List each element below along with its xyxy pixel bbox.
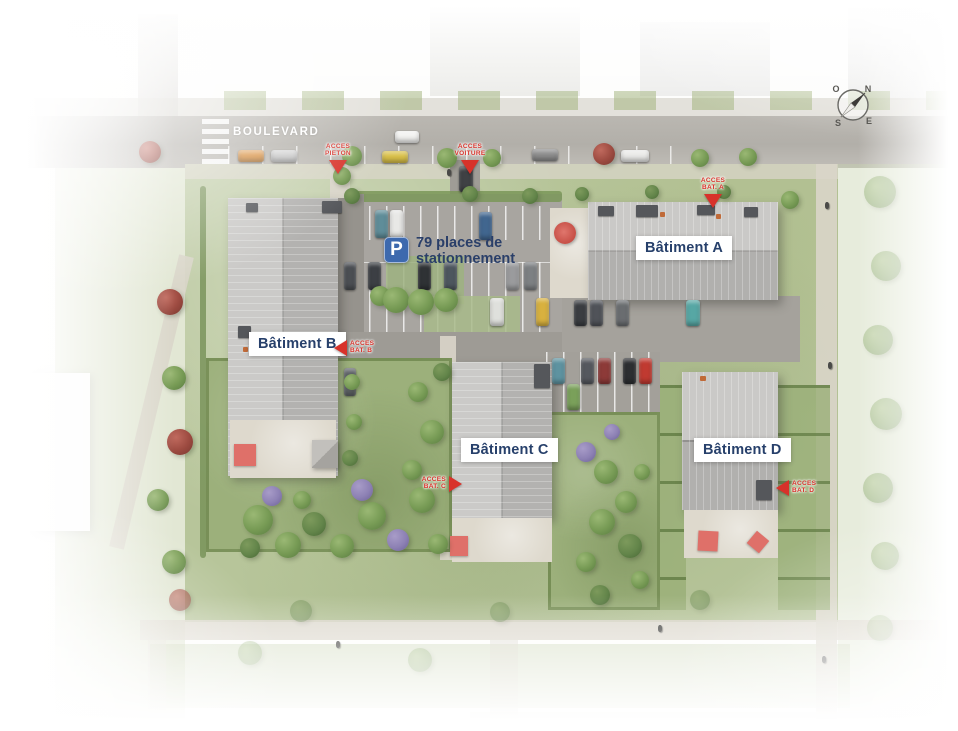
bush xyxy=(243,505,273,535)
bush xyxy=(781,191,799,209)
building-label-d[interactable]: Bâtiment D xyxy=(694,438,791,462)
bush xyxy=(358,502,386,530)
ghost-building-west xyxy=(0,373,90,531)
tree xyxy=(522,188,538,204)
bush xyxy=(290,600,312,622)
access-line: PIETON xyxy=(316,150,360,157)
bush xyxy=(293,491,311,509)
pedestrian xyxy=(828,362,832,369)
bush xyxy=(490,602,510,622)
context-block xyxy=(430,0,580,96)
awning xyxy=(697,530,718,551)
tree xyxy=(169,589,191,611)
site-plan: BOULEVARD xyxy=(0,0,958,731)
car xyxy=(623,358,636,384)
access-bat-b-arrow-icon xyxy=(334,340,347,356)
bush xyxy=(594,460,618,484)
car xyxy=(344,262,356,290)
tree xyxy=(383,287,409,313)
rooftop-furniture xyxy=(243,347,248,352)
parking-count-label: 79 places de stationnement xyxy=(416,236,515,268)
path-south-second xyxy=(470,712,958,731)
bush xyxy=(346,414,362,430)
access-pieton-label: ACCES PIETON xyxy=(316,143,360,158)
rooftop-furniture xyxy=(660,212,665,217)
parking-count-line2: stationnement xyxy=(416,252,515,268)
rooftop-furniture xyxy=(700,376,706,381)
car xyxy=(574,300,587,326)
compass-rose-icon: N E S O xyxy=(824,76,882,134)
access-bat-a-arrow-icon xyxy=(704,194,722,208)
sidewalk-site-top xyxy=(185,164,838,179)
tree xyxy=(691,149,709,167)
garden-plots-east-d xyxy=(778,385,830,610)
car xyxy=(375,210,388,238)
bush xyxy=(615,491,637,513)
car xyxy=(536,298,549,326)
car xyxy=(532,149,558,161)
bush xyxy=(433,363,451,381)
rooftop-unit xyxy=(598,206,614,216)
bush xyxy=(428,534,448,554)
bush xyxy=(645,185,659,199)
tree xyxy=(867,615,893,641)
tree xyxy=(739,148,757,166)
awning xyxy=(450,536,468,556)
tree xyxy=(462,186,478,202)
car xyxy=(616,300,629,326)
compass-north-label: N xyxy=(865,84,872,94)
pedestrian xyxy=(447,169,451,176)
car xyxy=(598,358,611,384)
tree xyxy=(162,366,186,390)
tree xyxy=(864,176,896,208)
car xyxy=(390,210,403,238)
bush xyxy=(275,532,301,558)
bush xyxy=(351,479,373,501)
car xyxy=(621,150,649,162)
access-bat-b-label: ACCES BAT. B xyxy=(350,340,380,355)
bush xyxy=(240,538,260,558)
bush xyxy=(589,509,615,535)
bush xyxy=(634,464,650,480)
tree xyxy=(147,489,169,511)
pedestrian xyxy=(822,656,826,663)
car xyxy=(581,358,594,384)
pedestrian xyxy=(336,641,340,648)
building-label-a[interactable]: Bâtiment A xyxy=(636,236,732,260)
compass-east-label: E xyxy=(866,116,872,126)
car xyxy=(382,151,408,163)
crosswalk xyxy=(202,119,229,165)
tree xyxy=(434,288,458,312)
tree xyxy=(870,398,902,430)
tree xyxy=(167,429,193,455)
rooftop-unit xyxy=(744,207,758,217)
terrace-building-a-west xyxy=(550,208,592,298)
tree xyxy=(157,289,183,315)
bush xyxy=(604,424,620,440)
bush xyxy=(575,187,589,201)
car xyxy=(490,298,504,326)
access-bat-d-arrow-icon xyxy=(776,480,789,496)
tree xyxy=(871,251,901,281)
pedestrian xyxy=(658,625,662,632)
car xyxy=(238,150,264,162)
bush xyxy=(302,512,326,536)
building-label-b[interactable]: Bâtiment B xyxy=(249,332,346,356)
car xyxy=(524,262,537,290)
car xyxy=(567,384,580,410)
rooftop-unit xyxy=(756,480,772,500)
path-south xyxy=(140,620,958,640)
parking-icon: P xyxy=(384,237,409,263)
awning xyxy=(234,444,256,466)
tree xyxy=(238,641,262,665)
car xyxy=(271,150,297,162)
tree xyxy=(408,289,434,315)
parking-count-line1: 79 places de xyxy=(416,236,515,252)
tree xyxy=(863,473,893,503)
access-bat-c-arrow-icon xyxy=(449,476,462,492)
access-bat-d-label: ACCES BAT. D xyxy=(792,480,822,495)
rooftop-furniture xyxy=(716,214,721,219)
building-label-c[interactable]: Bâtiment C xyxy=(461,438,558,462)
tree xyxy=(408,648,432,672)
access-line: BAT. D xyxy=(792,487,822,494)
rooftop-unit xyxy=(636,205,658,217)
car xyxy=(686,300,700,326)
bush xyxy=(342,450,358,466)
bush xyxy=(690,590,710,610)
access-bat-a-label: ACCES BAT. A xyxy=(691,177,735,192)
umbrella xyxy=(554,222,576,244)
context-block xyxy=(640,22,770,96)
tree xyxy=(139,141,161,163)
garden-shed xyxy=(312,440,338,468)
bush xyxy=(262,486,282,506)
bush xyxy=(330,534,354,558)
access-bat-c-label: ACCES BAT. C xyxy=(416,476,446,491)
bush xyxy=(618,534,642,558)
pedestrian xyxy=(825,202,829,209)
tree xyxy=(344,188,360,204)
access-voiture-arrow-icon xyxy=(461,160,479,174)
access-pieton-arrow-icon xyxy=(329,160,347,174)
access-line: VOITURE xyxy=(448,150,492,157)
bush xyxy=(408,382,428,402)
car xyxy=(395,131,419,143)
bush xyxy=(590,585,610,605)
car xyxy=(590,300,603,326)
tree xyxy=(863,325,893,355)
tree xyxy=(871,542,899,570)
street-name-label: BOULEVARD xyxy=(233,126,319,138)
context-lawn-east xyxy=(838,164,958,724)
bush xyxy=(631,571,649,589)
access-line: BAT. A xyxy=(691,184,735,191)
rooftop-unit xyxy=(322,201,342,213)
car xyxy=(552,358,565,384)
access-line: BAT. B xyxy=(350,347,380,354)
tree xyxy=(162,550,186,574)
path-south-left-stub xyxy=(148,640,166,731)
compass-west-label: O xyxy=(832,84,839,94)
access-line: BAT. C xyxy=(416,483,446,490)
rooftop-unit xyxy=(534,364,550,388)
bush xyxy=(344,374,360,390)
car xyxy=(639,358,652,384)
bush xyxy=(576,552,596,572)
compass-south-label: S xyxy=(835,118,841,128)
access-voiture-label: ACCES VOITURE xyxy=(448,143,492,158)
bush xyxy=(387,529,409,551)
bush xyxy=(576,442,596,462)
rooftop-unit xyxy=(246,203,258,212)
bush xyxy=(420,420,444,444)
tree xyxy=(593,143,615,165)
